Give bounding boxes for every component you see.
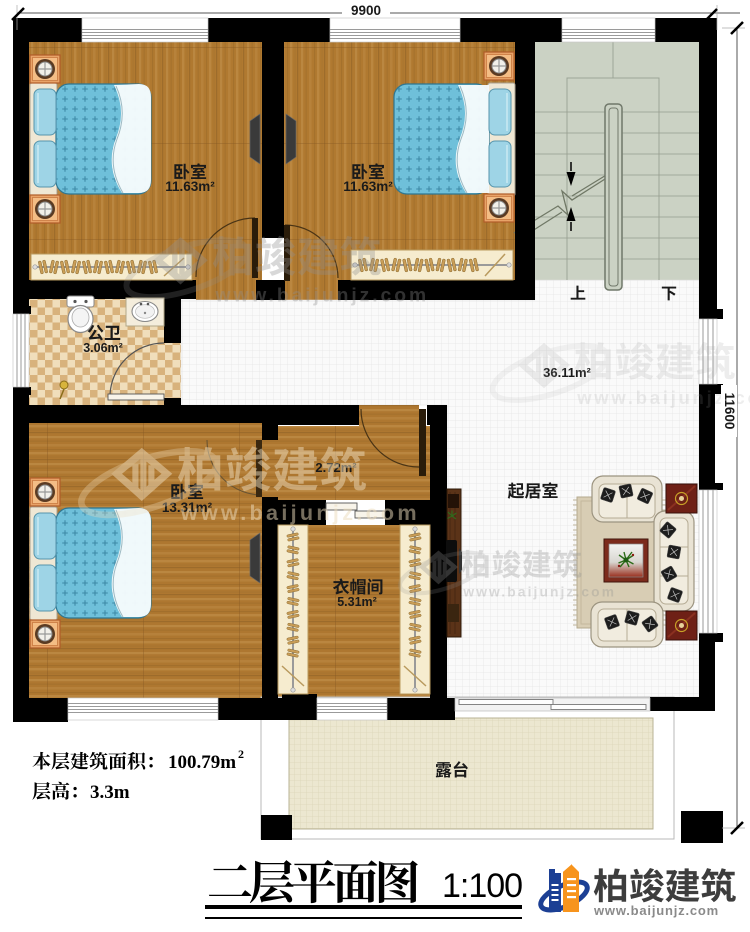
svg-text:www.baijunjz.com: www.baijunjz.com bbox=[593, 903, 719, 918]
svg-text:11600: 11600 bbox=[722, 393, 737, 430]
svg-text:11.63m²: 11.63m² bbox=[165, 179, 215, 194]
svg-text:100.79m: 100.79m bbox=[168, 752, 236, 773]
svg-text:www.baijunjz.com: www.baijunjz.com bbox=[180, 500, 420, 525]
svg-text:www.baijunjz.com: www.baijunjz.com bbox=[462, 584, 616, 599]
svg-text:3.3m: 3.3m bbox=[90, 782, 130, 803]
svg-text:11.63m²: 11.63m² bbox=[343, 179, 393, 194]
svg-text:www.baijunjz.com: www.baijunjz.com bbox=[214, 285, 429, 306]
svg-text:1:100: 1:100 bbox=[442, 867, 522, 905]
svg-text:9900: 9900 bbox=[351, 3, 381, 18]
svg-text:2: 2 bbox=[238, 747, 244, 761]
svg-text:5.31m²: 5.31m² bbox=[337, 595, 377, 609]
svg-text:3.06m²: 3.06m² bbox=[83, 341, 123, 355]
